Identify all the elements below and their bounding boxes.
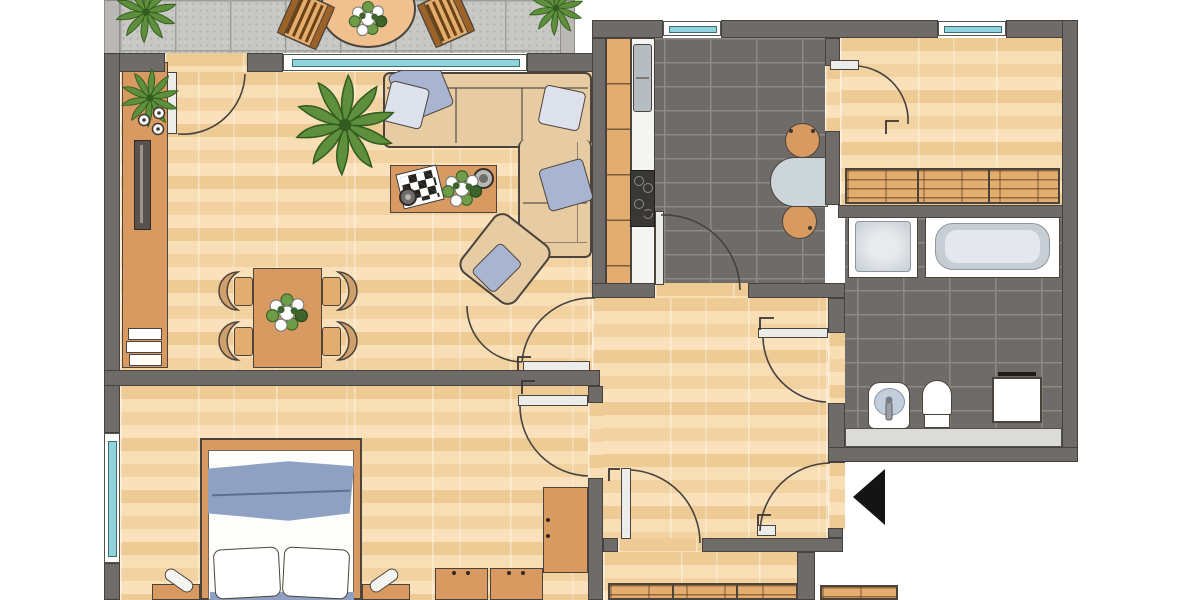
wall: [702, 538, 843, 552]
wall: [828, 447, 1078, 462]
wardrobe-knob: [521, 571, 525, 575]
slat-bench-entry: [820, 585, 898, 600]
room-top-right-door-leaf: [830, 60, 859, 70]
bathroom-door-leaf: [758, 328, 828, 338]
tub-basin: [935, 223, 1050, 270]
shower-tray: [855, 221, 911, 272]
kitchen-sink: [633, 44, 652, 112]
bathroom-counter-strip: [845, 428, 1062, 447]
kitchen-door-threshold: [655, 283, 748, 298]
wall: [247, 53, 283, 72]
wall: [527, 53, 600, 72]
wardrobe-knob: [546, 534, 550, 538]
dining-chair-seat: [322, 327, 341, 356]
slat-divider: [736, 585, 738, 598]
shower: [848, 215, 918, 278]
washing-machine: [992, 377, 1042, 423]
wall: [721, 20, 938, 38]
room-tr-door-threshold: [825, 66, 840, 131]
wardrobe-knob: [546, 518, 550, 522]
sofa-cushion-seam: [521, 88, 523, 143]
wall: [104, 563, 120, 600]
floor-plan: [0, 0, 1200, 600]
kitchen-chair-bottom: [782, 204, 817, 239]
washing-machine-top-line: [998, 372, 1036, 376]
book: [128, 328, 162, 340]
wall: [588, 478, 603, 600]
stove: [630, 170, 655, 227]
slatted-sideboard-room: [845, 168, 1060, 204]
toilet-tank: [924, 414, 950, 428]
wall: [828, 298, 845, 333]
window-glass: [292, 59, 520, 67]
entrance-threshold: [828, 463, 845, 530]
wall: [588, 386, 603, 403]
bedroom-window: [104, 433, 120, 563]
slat-divider: [988, 170, 990, 202]
mug: [399, 188, 417, 206]
wall: [104, 370, 600, 386]
burner: [643, 183, 653, 193]
room-bottom-door-threshold: [618, 538, 702, 552]
kitchen-cabinet-column: [606, 38, 631, 285]
wardrobe-unit: [490, 568, 543, 600]
mug-center: [405, 194, 411, 200]
kitchen-wall-table: [770, 157, 828, 207]
kitchen-window: [663, 21, 721, 36]
bowl-center: [479, 174, 488, 183]
living-room-window: [283, 54, 527, 71]
sofa-pillow-light-right: [537, 84, 586, 132]
room-top-right-window: [938, 21, 1006, 36]
wall: [825, 131, 840, 205]
wall: [118, 53, 165, 72]
slat-divider: [672, 585, 674, 598]
wall: [797, 552, 815, 600]
wall: [828, 528, 843, 538]
dining-chair-seat: [234, 277, 253, 306]
slatted-sideboard-bottom: [608, 583, 798, 600]
dining-table: [253, 268, 322, 368]
kitchen-chair-top: [785, 123, 820, 158]
bedroom-door-leaf: [518, 395, 588, 406]
wardrobe-tall: [543, 487, 588, 573]
wardrobe-knob: [466, 571, 470, 575]
dining-chair-seat: [322, 277, 341, 306]
basin-bowl: [874, 388, 905, 416]
bedroom-door-threshold: [588, 403, 603, 478]
wardrobe-unit: [435, 568, 488, 600]
wall: [1062, 20, 1078, 462]
entrance-door-leaf: [757, 525, 776, 536]
window-glass: [108, 441, 117, 557]
balcony-door-threshold: [165, 53, 247, 72]
wall: [603, 538, 618, 552]
wall: [838, 205, 1078, 218]
window-glass: [944, 26, 1002, 33]
tub-basin-inner: [945, 230, 1040, 263]
book-stack: [126, 328, 166, 368]
balcony-door-leaf: [167, 72, 177, 134]
bowl: [473, 168, 494, 189]
wall: [592, 20, 663, 38]
wardrobe-knob: [452, 571, 456, 575]
tv: [134, 140, 151, 230]
room-bottom-door-leaf: [621, 468, 631, 539]
balcony-wall-right: [560, 0, 575, 55]
tv-screen: [140, 145, 143, 223]
wall: [592, 283, 655, 298]
kitchen-door-leaf: [655, 211, 664, 285]
slat-divider: [917, 170, 919, 202]
burner: [634, 199, 644, 209]
burner: [634, 176, 644, 186]
burner: [643, 209, 653, 219]
book: [126, 341, 162, 353]
bathroom-door-threshold: [828, 333, 845, 403]
living-room-door-leaf: [523, 361, 590, 371]
bathtub: [925, 215, 1060, 278]
book: [129, 354, 162, 366]
entrance-arrow-icon: [853, 469, 885, 525]
wardrobe-knob: [507, 571, 511, 575]
wall: [592, 38, 606, 298]
dining-chair-seat: [234, 327, 253, 356]
balcony-wall-left: [104, 0, 120, 55]
wall: [748, 283, 845, 298]
bed-pillow-right: [282, 546, 351, 599]
toilet-bowl: [922, 380, 952, 416]
window-glass: [669, 26, 717, 33]
bed-pillow-left: [213, 546, 282, 599]
washbasin: [868, 382, 910, 429]
sofa-cushion-seam: [455, 88, 457, 143]
sink-divider: [636, 77, 649, 79]
